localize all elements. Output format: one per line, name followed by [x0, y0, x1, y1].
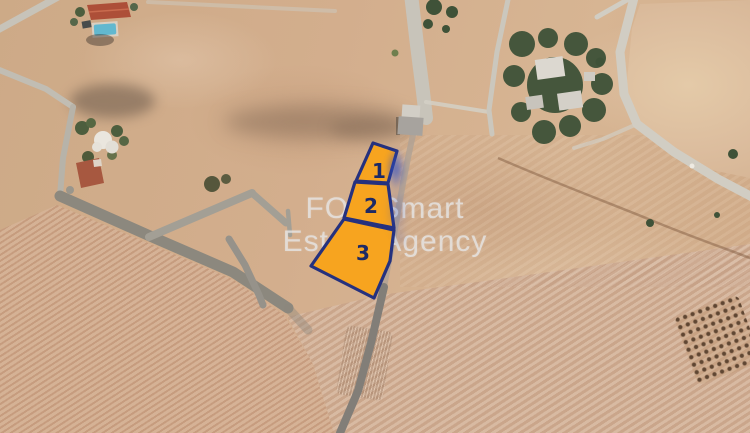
plot-3-polygon — [311, 219, 394, 298]
plots-overlay: 1 2 3 — [0, 0, 750, 433]
plot-2-label: 2 — [364, 194, 378, 218]
plot-1-label: 1 — [372, 159, 386, 183]
plot-3-label: 3 — [356, 241, 370, 265]
satellite-map-image: FOX Smart Estate Agency 1 2 3 — [0, 0, 750, 433]
blue-marker-smear — [394, 228, 405, 248]
